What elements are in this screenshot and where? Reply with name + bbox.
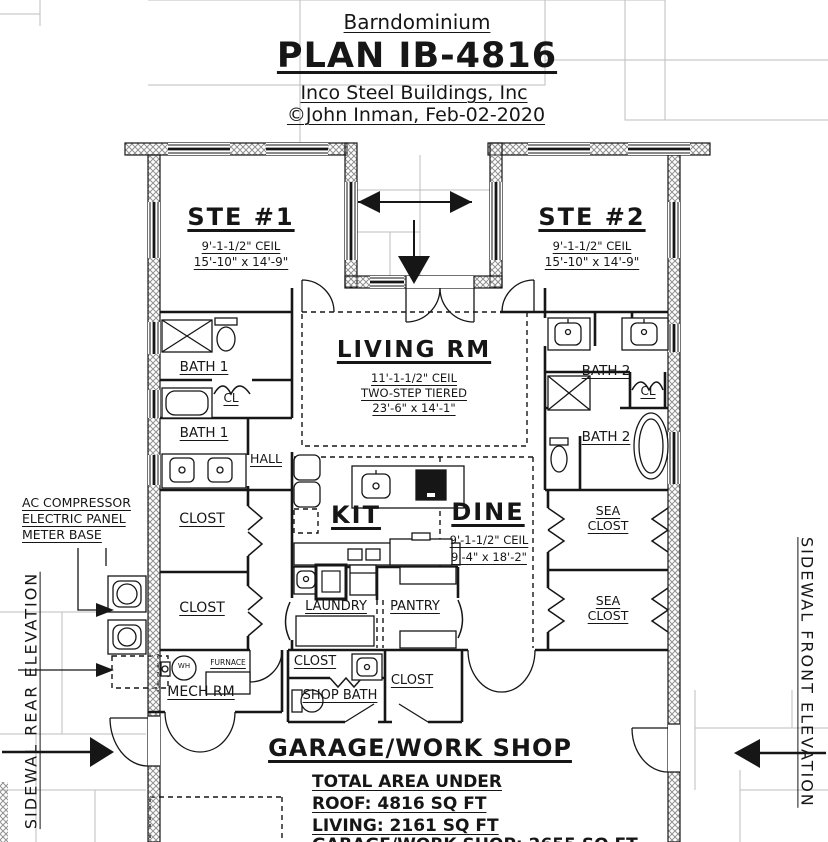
room-hall: HALL <box>250 452 282 465</box>
fridge-icon <box>294 455 320 507</box>
room-bath2-lower: BATH 2 <box>582 430 631 444</box>
room-ste2-ceiling: 9'-1-1/2" CEIL <box>553 240 632 252</box>
room-ste1-size: 15'-10" x 14'-9" <box>194 256 288 269</box>
room-dine-ceiling: 9'-1-1/2" CEIL <box>450 534 529 546</box>
plan-title: PLAN IB-4816 <box>277 38 557 75</box>
room-sea-closet-1-line1: SEA <box>596 504 620 517</box>
room-dine-name: DINE <box>451 500 524 525</box>
room-sea-closet-2-line1: SEA <box>596 594 620 607</box>
room-ste2-name: STE #2 <box>538 205 645 230</box>
laundry-counter-icon <box>296 616 374 646</box>
room-living-note: TWO-STEP TIERED <box>361 387 467 399</box>
ac-compressor-1-icon <box>108 576 146 612</box>
room-sea-closet-2-line2: CLOST <box>588 609 629 622</box>
shower-bath2-icon <box>548 376 590 410</box>
toilet-bath2-icon <box>550 438 568 472</box>
furnace-label: FURNACE <box>210 659 246 667</box>
room-ste1-name: STE #1 <box>187 205 294 230</box>
room-ste2-size: 15'-10" x 14'-9" <box>545 256 639 269</box>
floorplan-sheet: Barndominium PLAN IB-4816 Inco Steel Bui… <box>0 0 828 842</box>
room-dine-size: 9'-4" x 18'-2" <box>451 551 527 563</box>
room-shop-bath: SHOP BATH <box>303 689 378 703</box>
background-grid <box>0 0 828 842</box>
room-pantry: PANTRY <box>390 600 440 614</box>
tub-bath1-icon <box>162 388 212 418</box>
room-closet-left-1: CLOST <box>179 512 225 527</box>
room-closet-right: CLOST <box>391 674 433 688</box>
room-ste1-ceiling: 9'-1-1/2" CEIL <box>202 240 281 252</box>
room-bath1-upper: BATH 1 <box>180 360 229 374</box>
room-closet-center: CLOST <box>294 655 336 669</box>
room-laundry: LAUNDRY <box>305 600 367 614</box>
room-bath1-lower: BATH 1 <box>180 426 229 440</box>
elevation-label-right: SIDEWAL FRONT ELEVATION <box>798 522 815 822</box>
room-garage: GARAGE/WORK SHOP <box>268 736 572 761</box>
copyright-line: ©John Inman, Feb-02-2020 <box>287 106 545 126</box>
annotation-meter-base: METER BASE <box>22 528 102 541</box>
shower-bath1-icon <box>162 320 212 352</box>
elevation-label-left: SIDEWAL REAR ELEVATION <box>24 550 41 842</box>
water-heater-label: WH <box>178 663 190 670</box>
annotation-ac-compressor: AC COMPRESSOR <box>22 496 131 509</box>
company-name: Inco Steel Buildings, Inc <box>300 84 527 104</box>
edge-hatch-fragment <box>0 782 8 842</box>
floorplan-drawing <box>0 0 828 842</box>
room-living-name: LIVING RM <box>337 338 491 362</box>
ac-compressor-2-icon <box>108 620 146 654</box>
room-cl-left: CL <box>223 392 238 405</box>
sheet-subtitle: Barndominium <box>344 12 491 33</box>
meter-base-icon <box>161 662 170 676</box>
tub-bath2-icon <box>634 413 668 479</box>
laundry-sink-icon <box>294 567 318 594</box>
totals-clipped-line: GARAGE/WORK SHOP: 2655 SQ FT <box>312 837 638 842</box>
totals-line1: TOTAL AREA UNDER <box>312 774 502 792</box>
room-sea-closet-1-line2: CLOST <box>588 519 629 532</box>
room-bath2-upper: BATH 2 <box>582 364 631 378</box>
totals-line3: LIVING: 2161 SQ FT <box>312 818 499 836</box>
sink-bath2-left-icon <box>548 318 590 350</box>
vanity-bath1-icon <box>162 454 246 488</box>
room-kit-name: KIT <box>331 503 381 528</box>
room-closet-left-2: CLOST <box>179 601 225 616</box>
annotation-electric-panel: ELECTRIC PANEL <box>22 512 126 525</box>
toilet-bath1-icon <box>215 318 237 351</box>
washer-icon <box>316 565 346 599</box>
kitchen-counter-icon <box>294 533 460 565</box>
totals-line2: ROOF: 4816 SQ FT <box>312 796 486 814</box>
sink-bath2-right-icon <box>622 318 668 350</box>
room-mech: MECH RM <box>167 685 234 700</box>
room-living-ceiling: 11'-1-1/2" CEIL <box>371 372 457 384</box>
dryer-icon <box>350 565 376 595</box>
room-cl-right: CL <box>640 385 655 398</box>
room-living-size: 23'-6" x 14'-1" <box>372 402 455 414</box>
shopbath-sink-icon <box>352 654 382 680</box>
